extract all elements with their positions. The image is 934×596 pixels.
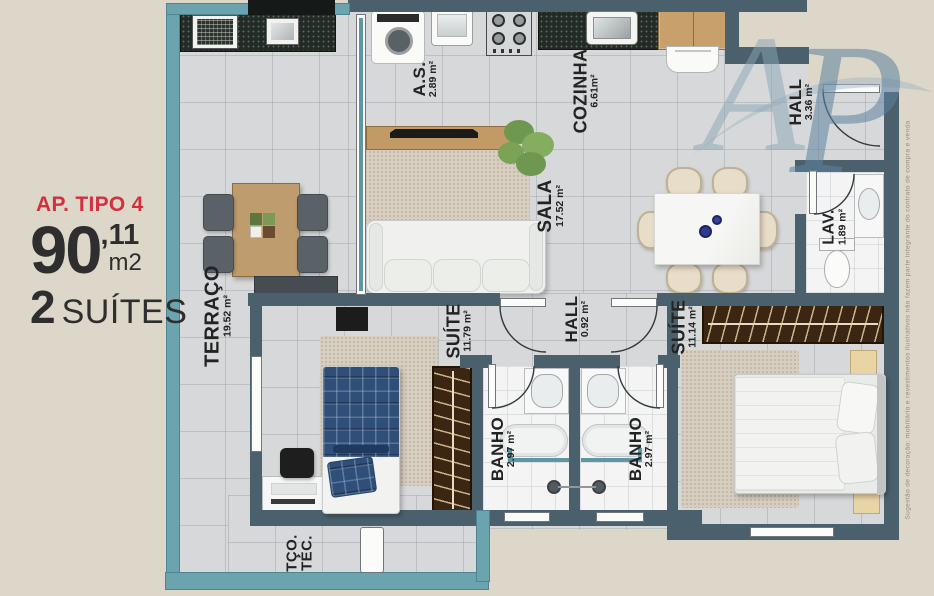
- drain-connector-line: [558, 486, 596, 488]
- kitchen-cabinet: [658, 8, 727, 50]
- suite1-bed-pillow: [327, 456, 378, 498]
- stove-burner: [513, 14, 526, 27]
- suite2-pillow: [836, 381, 881, 436]
- room-area: 6.61m²: [590, 74, 601, 107]
- kitchen-sink: [586, 11, 638, 45]
- banho1-shower-glass: [508, 458, 569, 462]
- suites-word: SUÍTES: [62, 293, 188, 332]
- gourmet-sink: [266, 18, 299, 45]
- room-label-sala: SALA 17.52 m²: [536, 179, 566, 232]
- suite2-headboard: [877, 375, 885, 495]
- lavabo-left-wall-upper: [795, 160, 806, 172]
- lavabo-door-leaf: [809, 170, 817, 214]
- banho1-banho2-wall: [569, 364, 580, 514]
- suite2-door-leaf: [611, 298, 657, 307]
- room-name: LAV.: [821, 209, 837, 244]
- decor-plant-square: [263, 213, 275, 225]
- stove-burner: [492, 14, 505, 27]
- stove-burner: [513, 32, 526, 45]
- suites-number: 2: [30, 287, 56, 328]
- banho1-window: [504, 512, 550, 522]
- terraco-railing-bottom: [165, 572, 489, 590]
- suite2-bed: [734, 374, 886, 494]
- dining-chair: [712, 262, 748, 294]
- suite1-bed-cushion: [333, 445, 389, 453]
- suites-count: 2 SUÍTES: [30, 287, 187, 332]
- desk-drawer: [271, 483, 317, 495]
- terraco-chair: [297, 236, 328, 273]
- room-area: 17.52 m²: [555, 185, 566, 227]
- suite1-desk-chair: [280, 448, 314, 478]
- area-unit: m2: [109, 250, 142, 275]
- room-label-terraco: TERRAÇO 19.52 m²: [202, 265, 233, 367]
- apartment-area: 90 ,11 m2: [30, 219, 187, 283]
- room-label-suite1: SUÍTE 11.79 m²: [444, 303, 473, 358]
- area-decimal: ,11: [101, 221, 142, 250]
- room-name: SUÍTE: [669, 299, 687, 354]
- terraco-chair: [203, 194, 234, 231]
- suite1-window: [251, 356, 262, 452]
- room-label-cozinha: COZINHA 6.61m²: [571, 49, 600, 134]
- suite1-banho1-wall: [472, 355, 483, 515]
- room-name: TERRAÇO: [202, 265, 222, 367]
- info-panel: AP. TIPO 4 90 ,11 m2 2 SUÍTES: [30, 193, 187, 332]
- dining-chair: [666, 262, 702, 294]
- room-area: 2.89 m²: [428, 61, 439, 97]
- tv: [390, 129, 478, 138]
- suite1-tv: [336, 307, 368, 331]
- plant-leaf: [516, 152, 546, 176]
- banho1-door-leaf: [488, 364, 496, 408]
- sofa-armrest: [529, 223, 543, 291]
- room-label-lavabo: LAV. 1.89 m²: [821, 209, 848, 245]
- room-label-banho1: BANHO 2.97 m²: [489, 417, 517, 481]
- terraco-centerpiece: [250, 213, 276, 239]
- washing-machine: [371, 10, 425, 64]
- sofa-cushion: [384, 259, 432, 292]
- room-name: SALA: [536, 179, 555, 232]
- tco-tec-railing-right: [476, 510, 490, 582]
- room-label-servico: A.S. 2.89 m²: [411, 61, 439, 97]
- room-label-suite2: SUÍTE 11.14 m²: [669, 299, 698, 354]
- fridge-handle: [675, 50, 711, 52]
- desk-keyboard: [271, 499, 315, 504]
- kitchen-sink-basin: [593, 17, 631, 39]
- lavabo-left-wall-lower: [795, 214, 806, 293]
- room-area: 2.97 m²: [506, 431, 517, 467]
- table-bowl: [699, 225, 712, 238]
- laundry-sink: [431, 8, 473, 46]
- terraco-chair: [297, 194, 328, 231]
- room-label-banho2: BANHO 2.97 m²: [627, 417, 655, 481]
- plant: [496, 116, 558, 182]
- sofa-cushion: [482, 259, 530, 292]
- room-area: 1.89 m²: [838, 209, 849, 245]
- disclaimer-text: Sugestão de decoração: mobiliário e reve…: [905, 120, 912, 519]
- room-area: 11.14 m²: [688, 306, 699, 347]
- banho2-basin: [587, 374, 619, 408]
- lavabo-sink: [858, 188, 880, 220]
- stove-burner: [492, 32, 505, 45]
- terraco-glass-line: [359, 18, 363, 291]
- banho2-door-leaf: [656, 364, 664, 408]
- floor-plan-canvas: A P TERRAÇO 19.52 m² A.S. 2.89 m² COZINH…: [0, 0, 934, 596]
- sofa-cushion: [433, 259, 481, 292]
- suite2-wardrobe: [702, 302, 884, 344]
- cabinet-seam: [693, 11, 694, 47]
- decor-dish: [250, 226, 262, 238]
- room-name: TÉC.: [300, 535, 315, 571]
- room-area: 3.36 m²: [804, 84, 815, 120]
- range-hood: [248, 0, 335, 15]
- room-name: A.S.: [411, 62, 428, 97]
- grill-grate: [197, 19, 233, 45]
- area-integer: 90: [30, 219, 101, 283]
- suite2-pillow: [834, 431, 879, 485]
- grill: [192, 15, 238, 49]
- stove-knobs: [493, 49, 525, 53]
- hall-intimo-bottom-wall: [534, 355, 620, 368]
- room-name: TÇO.: [285, 534, 300, 571]
- room-name: BANHO: [489, 417, 506, 481]
- washer-door: [385, 27, 413, 55]
- banho1-basin: [531, 374, 563, 408]
- lavabo-toilet-bowl: [824, 250, 850, 288]
- decor-plant-square: [250, 213, 262, 225]
- suite2-nightstand: [850, 350, 877, 375]
- gourmet-sink-basin: [271, 23, 294, 40]
- room-name: COZINHA: [571, 49, 589, 134]
- room-area: 0.92 m²: [580, 301, 591, 337]
- entry-door-leaf: [823, 84, 880, 93]
- tco-tec-unit: [360, 527, 384, 573]
- laundry-sink-basin: [437, 14, 467, 37]
- room-name: HALL: [563, 296, 580, 343]
- room-label-tco-tec: TÇO. TÉC.: [285, 534, 316, 571]
- stove: [486, 8, 532, 56]
- room-label-hall-entrada: HALL 3.36 m²: [787, 79, 815, 126]
- table-bowl: [712, 215, 722, 225]
- sofa-armrest: [369, 223, 383, 291]
- room-area: 11.79 m²: [463, 310, 474, 351]
- suite1-desk: [262, 476, 324, 514]
- exterior-top-right: [807, 0, 934, 84]
- suite1-door-leaf: [500, 298, 546, 307]
- sofa: [366, 220, 546, 294]
- decor-box: [263, 226, 275, 238]
- fridge: [666, 46, 719, 73]
- suite2-window: [750, 527, 834, 537]
- suite1-bed: [322, 366, 400, 514]
- suite2-duvet: [735, 377, 845, 491]
- suite1-wardrobe: [432, 366, 472, 514]
- room-area: 2.97 m²: [644, 431, 655, 467]
- room-name: BANHO: [627, 417, 644, 481]
- room-label-hall-intimo: HALL 0.92 m²: [563, 296, 591, 343]
- washer-panel: [377, 14, 419, 22]
- room-name: HALL: [787, 79, 804, 126]
- suite1-bed-plaid-duvet: [323, 367, 399, 457]
- room-name: SUÍTE: [444, 303, 462, 358]
- room-area: 19.52 m²: [223, 295, 234, 337]
- entry-top-wall: [725, 47, 809, 64]
- banho2-window: [596, 512, 644, 522]
